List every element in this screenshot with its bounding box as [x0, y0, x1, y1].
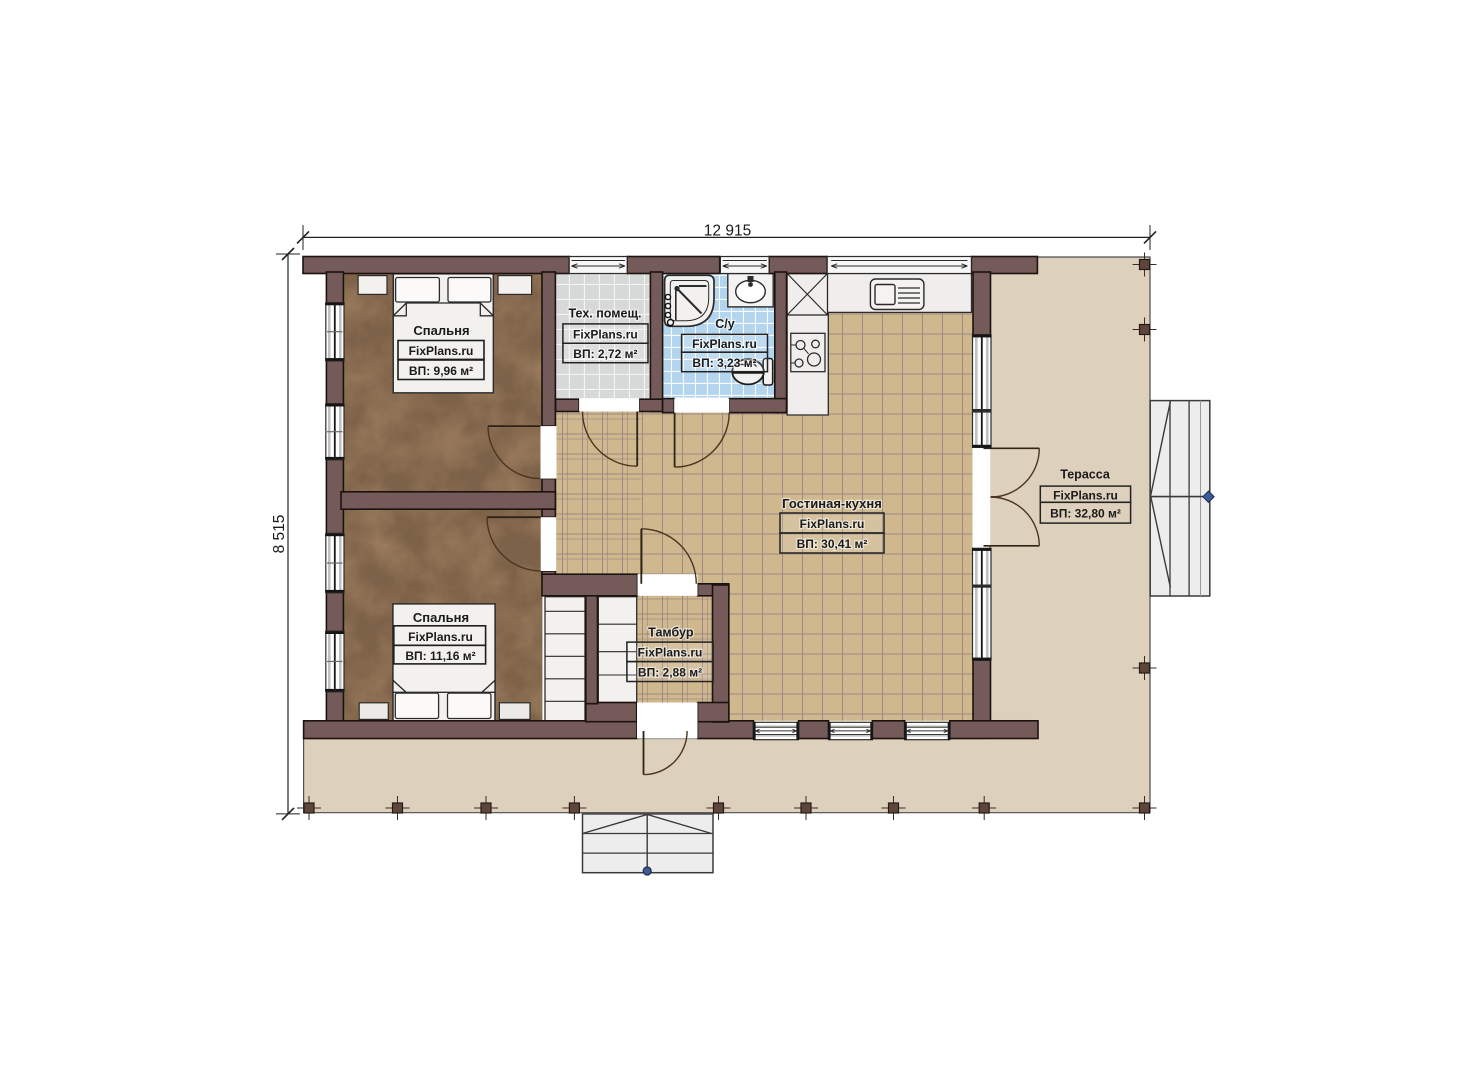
svg-text:Спальня: Спальня: [413, 610, 469, 625]
svg-text:FixPlans.ru: FixPlans.ru: [692, 337, 757, 351]
svg-text:FixPlans.ru: FixPlans.ru: [409, 344, 474, 358]
svg-text:Тех. помещ.: Тех. помещ.: [569, 307, 642, 321]
svg-text:ВП: 3,23 м²: ВП: 3,23 м²: [692, 356, 756, 370]
svg-text:12 915: 12 915: [704, 223, 751, 240]
svg-text:Спальня: Спальня: [413, 323, 469, 338]
svg-text:FixPlans.ru: FixPlans.ru: [1053, 488, 1118, 502]
svg-text:FixPlans.ru: FixPlans.ru: [800, 517, 865, 531]
svg-text:ВП: 30,41 м²: ВП: 30,41 м²: [797, 537, 868, 551]
svg-text:ВП: 2,72 м²: ВП: 2,72 м²: [573, 347, 637, 361]
svg-text:FixPlans.ru: FixPlans.ru: [638, 646, 703, 660]
svg-text:Гостиная-кухня: Гостиная-кухня: [782, 496, 882, 511]
svg-text:Терасса: Терасса: [1060, 468, 1111, 482]
svg-text:ВП: 11,16 м²: ВП: 11,16 м²: [405, 649, 475, 663]
svg-text:ВП: 9,96 м²: ВП: 9,96 м²: [409, 364, 473, 378]
svg-text:FixPlans.ru: FixPlans.ru: [573, 328, 638, 342]
svg-text:ВП: 2,88 м²: ВП: 2,88 м²: [638, 665, 702, 679]
svg-text:8 515: 8 515: [271, 515, 288, 554]
svg-text:Тамбур: Тамбур: [648, 626, 694, 640]
svg-text:FixPlans.ru: FixPlans.ru: [408, 630, 473, 644]
svg-text:ВП: 32,80 м²: ВП: 32,80 м²: [1050, 507, 1121, 521]
svg-text:С/у: С/у: [715, 317, 735, 331]
